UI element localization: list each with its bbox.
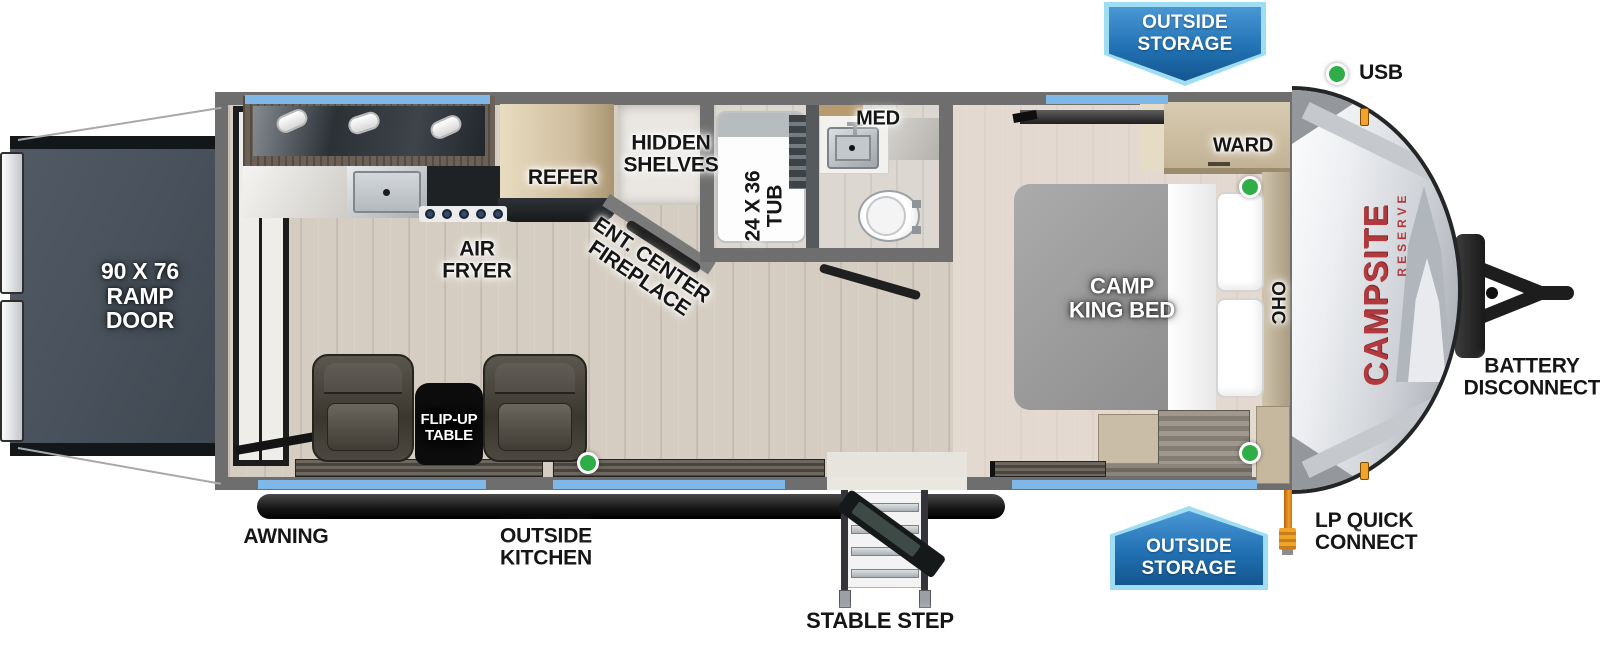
window-strip <box>1012 480 1257 489</box>
lp-quick-connect-label: LP QUICK CONNECT <box>1315 510 1417 555</box>
pillow <box>1216 192 1264 292</box>
entry-door-opening <box>827 477 967 490</box>
lp-quick-connect-fitting <box>1279 528 1296 550</box>
tub-divider-wall <box>806 105 819 248</box>
window-strip <box>258 480 486 489</box>
chair-backrest <box>495 363 575 394</box>
pillow <box>1216 298 1264 398</box>
tub-label: 24 X 36 TUB <box>743 171 788 242</box>
foot-dresser <box>1158 410 1250 468</box>
cooktop <box>427 166 503 210</box>
ramp-door-bottom-hinge <box>10 443 222 456</box>
burner <box>493 209 503 219</box>
stable-step-label: STABLE STEP <box>806 609 954 633</box>
window-strip <box>1046 95 1168 104</box>
bed-sheet-fold <box>1168 184 1216 410</box>
wardrobe-label: WARD <box>1213 135 1273 156</box>
toilet-hinge <box>912 226 921 234</box>
wardrobe-handle <box>1208 162 1230 166</box>
bathroom-sink-drain <box>849 145 855 151</box>
brand-logo: CAMPSITE <box>1357 145 1395 445</box>
dresser-base <box>1100 464 1252 477</box>
ramp-door-label: 90 X 76 RAMP DOOR <box>101 259 179 333</box>
brand-series: RESERVE <box>1395 154 1409 314</box>
bathroom-wall-right <box>939 105 953 248</box>
ramp-door-rail <box>0 300 24 442</box>
kitchen-counter <box>243 166 347 218</box>
window-strip <box>245 95 490 104</box>
step-foot <box>839 590 851 608</box>
burner <box>442 209 452 219</box>
toilet-seat <box>866 196 906 236</box>
awning-label: AWNING <box>243 526 328 548</box>
usb-label: USB <box>1359 62 1403 84</box>
usb-indicator-dot <box>1326 63 1348 85</box>
ohc-label: OHC <box>1267 281 1287 325</box>
refer-label: REFER <box>528 167 598 189</box>
hitch-a-frame <box>1482 260 1574 326</box>
step-foot <box>919 590 931 608</box>
marker-light <box>1360 462 1369 480</box>
bathroom-wall-left <box>700 105 714 262</box>
burner <box>459 209 469 219</box>
lp-pipe <box>1284 490 1292 530</box>
window-strip <box>553 480 785 489</box>
burner <box>425 209 435 219</box>
bottom-window-rail <box>990 461 1106 477</box>
toilet-hinge <box>912 200 921 208</box>
lp-fitting-tip <box>1282 549 1293 555</box>
lounge-chair <box>312 354 414 462</box>
banner-label: OUTSIDE STORAGE <box>1110 536 1268 580</box>
outside-storage-banner-bottom: OUTSIDE STORAGE <box>1110 506 1268 590</box>
bathroom-wall-bottom <box>700 248 953 262</box>
camp-king-bed-label: CAMP KING BED <box>1069 274 1175 321</box>
chair-seat <box>498 403 572 451</box>
air-fryer-label: AIR FRYER <box>442 239 511 284</box>
bedroom-cabinet <box>1098 414 1160 464</box>
entry-mat <box>827 452 967 477</box>
ramp-door-rail <box>0 152 24 294</box>
kitchen-sink-drain <box>383 189 390 196</box>
med-cabinet-label: MED <box>856 108 900 129</box>
bedroom-tv <box>1020 110 1166 124</box>
rv-floorplan-diagram: CAMPSITE RESERVE OUTSIDE STORAGE OUTSIDE… <box>0 0 1600 648</box>
usb-indicator-dot <box>1239 442 1261 464</box>
chair-seat <box>327 403 400 451</box>
flip-up-table-label: FLIP-UP TABLE <box>421 412 478 444</box>
ramp-door-top-hinge <box>10 136 222 149</box>
shower-shelf-slats <box>789 115 807 189</box>
outside-storage-banner-top: OUTSIDE STORAGE <box>1104 2 1266 86</box>
step-rung <box>851 569 919 578</box>
corner-cabinet <box>1256 406 1290 484</box>
marker-light <box>1360 108 1369 126</box>
banner-label: OUTSIDE STORAGE <box>1104 12 1266 56</box>
burner <box>476 209 486 219</box>
lounge-chair <box>483 354 587 462</box>
outside-kitchen-label: OUTSIDE KITCHEN <box>500 526 592 571</box>
usb-indicator-dot <box>577 452 599 474</box>
chair-backrest <box>324 363 402 394</box>
hidden-shelves-label: HIDDEN SHELVES <box>623 133 718 178</box>
battery-disconnect-label: BATTERY DISCONNECT <box>1464 356 1600 401</box>
usb-indicator-dot <box>1239 176 1261 198</box>
